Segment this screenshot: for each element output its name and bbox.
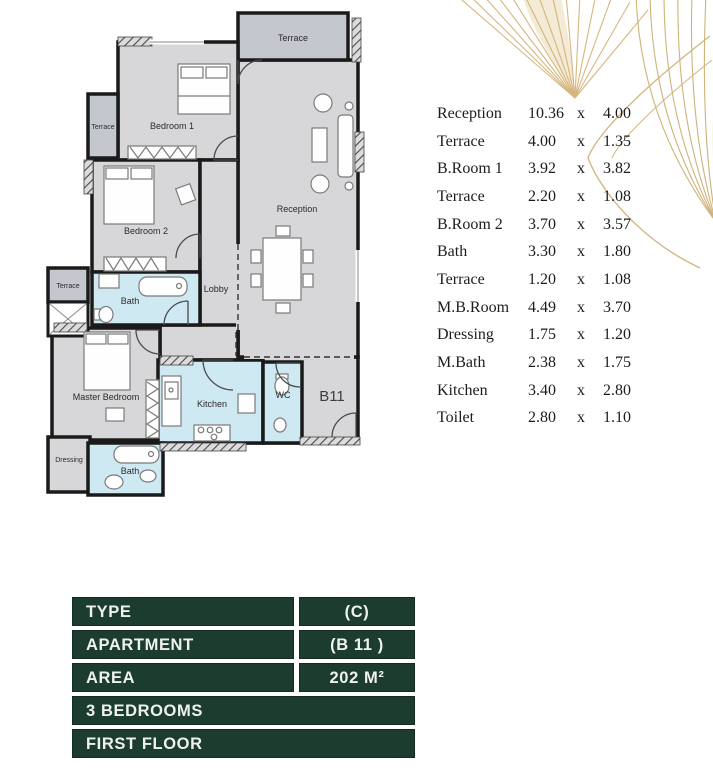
bedroom2-label: Bedroom 2 — [124, 226, 168, 236]
info-panel: TYPE (C) APARTMENT (B 11 ) AREA 202 M² 3… — [72, 597, 415, 762]
dim-separator: x — [570, 105, 592, 123]
dimension-row: Kitchen3.40x2.80 — [437, 377, 652, 405]
dim-separator: x — [570, 326, 592, 344]
dim-width: 3.30 — [528, 243, 570, 261]
info-row-bedrooms: 3 BEDROOMS — [72, 696, 415, 725]
dining-table — [263, 238, 301, 300]
dressing-label: Dressing — [55, 457, 83, 464]
armchair — [311, 175, 329, 193]
dim-height: 1.08 — [592, 271, 652, 289]
sink — [274, 418, 286, 432]
dim-room-name: Toilet — [437, 409, 528, 427]
dim-separator: x — [570, 188, 592, 206]
dimension-row: Terrace1.20x1.08 — [437, 266, 652, 294]
terrace-top-label: Terrace — [278, 33, 308, 43]
dimension-row: Reception10.36x4.00 — [437, 100, 652, 128]
dim-width: 2.38 — [528, 354, 570, 372]
dim-height: 1.20 — [592, 326, 652, 344]
sink — [105, 475, 123, 489]
floor-label: FIRST FLOOR — [72, 729, 415, 758]
type-label: TYPE — [72, 597, 294, 626]
dim-room-name: M.B.Room — [437, 299, 528, 317]
dim-height: 1.80 — [592, 243, 652, 261]
armchair — [314, 94, 332, 112]
dim-width: 3.40 — [528, 382, 570, 400]
dim-height: 3.70 — [592, 299, 652, 317]
corridor — [160, 325, 238, 360]
dim-separator: x — [570, 299, 592, 317]
dim-separator: x — [570, 216, 592, 234]
dimension-row: Dressing1.75x1.20 — [437, 322, 652, 350]
toilet — [140, 470, 156, 482]
wc-label: WC — [276, 390, 291, 400]
dim-width: 2.20 — [528, 188, 570, 206]
info-row-area: AREA 202 M² — [72, 663, 415, 692]
dim-height: 3.57 — [592, 216, 652, 234]
dimension-row: B.Room 13.92x3.82 — [437, 155, 652, 183]
dim-width: 1.20 — [528, 271, 570, 289]
apartment-value: (B 11 ) — [299, 630, 415, 659]
dim-separator: x — [570, 271, 592, 289]
dim-width: 3.92 — [528, 160, 570, 178]
lobby-label: Lobby — [204, 284, 229, 294]
dim-width: 1.75 — [528, 326, 570, 344]
dim-room-name: Terrace — [437, 133, 528, 151]
bath-bottom-label: Bath — [121, 466, 140, 476]
dimension-row: Toilet2.80x1.10 — [437, 405, 652, 433]
type-value: (C) — [299, 597, 415, 626]
terrace-left-label: Terrace — [91, 124, 114, 131]
dim-room-name: Kitchen — [437, 382, 528, 400]
dimension-row: B.Room 23.70x3.57 — [437, 211, 652, 239]
dim-room-name: Bath — [437, 243, 528, 261]
dim-separator: x — [570, 354, 592, 372]
dim-width: 3.70 — [528, 216, 570, 234]
dim-room-name: Terrace — [437, 188, 528, 206]
sofa — [338, 115, 353, 177]
dimensions-table: Reception10.36x4.00 Terrace4.00x1.35 B.R… — [437, 100, 652, 432]
dimension-row: M.Bath2.38x1.75 — [437, 349, 652, 377]
floor-plan: Terrace Bedroom 1 Terrace Bedroom 2 Rece… — [40, 4, 370, 504]
dim-width: 2.80 — [528, 409, 570, 427]
info-row-apartment: APARTMENT (B 11 ) — [72, 630, 415, 659]
dim-room-name: B.Room 1 — [437, 160, 528, 178]
dim-room-name: Reception — [437, 105, 528, 123]
terrace-small-label: Terrace — [56, 283, 79, 290]
dim-width: 10.36 — [528, 105, 570, 123]
dim-height: 1.10 — [592, 409, 652, 427]
bedroom1-label: Bedroom 1 — [150, 121, 194, 131]
dim-width: 4.49 — [528, 299, 570, 317]
dimension-row: Terrace2.20x1.08 — [437, 183, 652, 211]
dim-separator: x — [570, 243, 592, 261]
bathtub — [114, 446, 159, 463]
sink — [99, 274, 119, 288]
dim-room-name: M.Bath — [437, 354, 528, 372]
dim-room-name: Terrace — [437, 271, 528, 289]
dim-height: 3.82 — [592, 160, 652, 178]
dim-separator: x — [570, 160, 592, 178]
area-label: AREA — [72, 663, 294, 692]
bath-top-label: Bath — [121, 296, 140, 306]
unit-number-label: B11 — [319, 388, 345, 405]
info-row-floor: FIRST FLOOR — [72, 729, 415, 758]
info-row-type: TYPE (C) — [72, 597, 415, 626]
dim-separator: x — [570, 409, 592, 427]
brochure-page: Terrace Bedroom 1 Terrace Bedroom 2 Rece… — [0, 0, 713, 774]
dim-separator: x — [570, 382, 592, 400]
master-bedroom-label: Master Bedroom — [73, 392, 140, 402]
area-value: 202 M² — [299, 663, 415, 692]
dim-height: 2.80 — [592, 382, 652, 400]
dim-room-name: Dressing — [437, 326, 528, 344]
dim-width: 4.00 — [528, 133, 570, 151]
dim-height: 1.35 — [592, 133, 652, 151]
chair — [106, 408, 124, 421]
bedrooms-label: 3 BEDROOMS — [72, 696, 415, 725]
dimension-row: Bath3.30x1.80 — [437, 238, 652, 266]
bathtub — [139, 277, 187, 296]
coffee-table — [312, 128, 327, 162]
dressing-room — [48, 437, 90, 492]
apartment-label: APARTMENT — [72, 630, 294, 659]
dimension-row: Terrace4.00x1.35 — [437, 128, 652, 156]
dimension-row: M.B.Room4.49x3.70 — [437, 294, 652, 322]
dim-height: 1.75 — [592, 354, 652, 372]
dim-room-name: B.Room 2 — [437, 216, 528, 234]
kitchen-label: Kitchen — [197, 399, 227, 409]
dim-separator: x — [570, 133, 592, 151]
dim-height: 1.08 — [592, 188, 652, 206]
dim-height: 4.00 — [592, 105, 652, 123]
reception-label: Reception — [277, 204, 318, 214]
toilet — [99, 307, 113, 323]
